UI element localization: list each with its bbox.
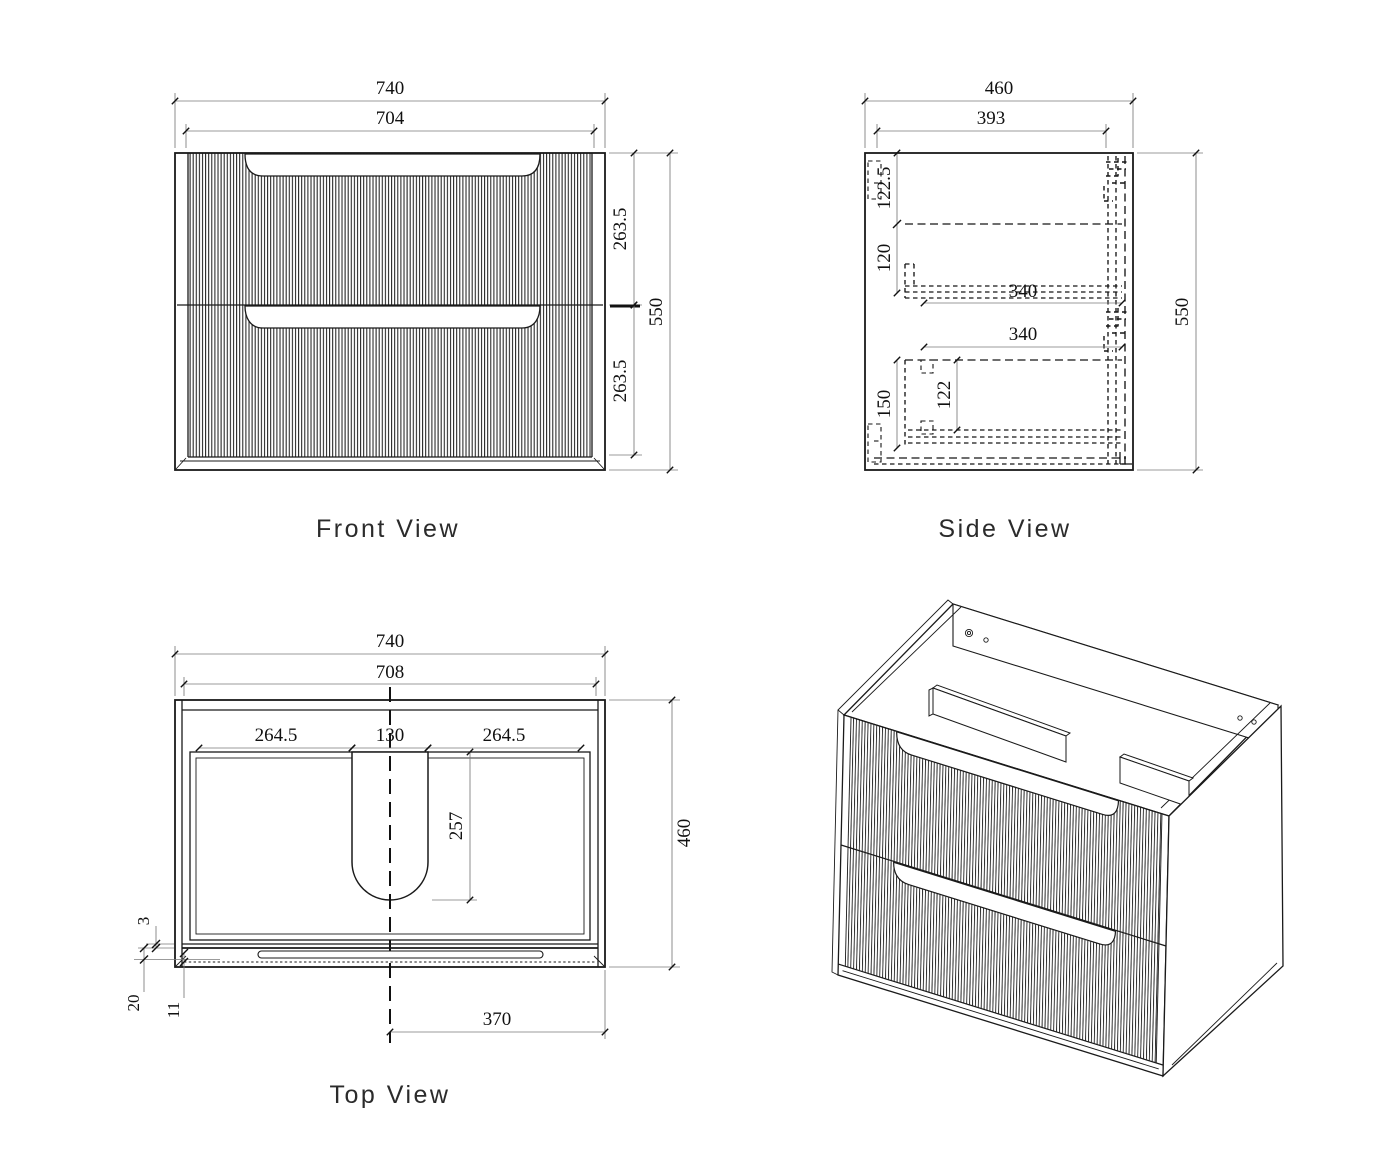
front-view: 740 704 263.5 263.5 550 Front View: [175, 78, 678, 543]
svg-text:120: 120: [874, 244, 895, 273]
top-dim-cutout-center: 370: [390, 970, 605, 1039]
svg-text:150: 150: [874, 390, 895, 419]
svg-text:550: 550: [1172, 298, 1193, 327]
svg-text:460: 460: [985, 78, 1014, 99]
side-view: 460 393 122.5 120 150 122 340 340 550 Si…: [865, 78, 1203, 543]
side-dim-overall-height: 550: [1137, 153, 1203, 470]
front-dim-drawer-width: 704: [186, 108, 594, 148]
top-dim-overall-depth: 460: [609, 700, 695, 967]
svg-text:263.5: 263.5: [610, 208, 631, 251]
front-view-label: Front View: [316, 515, 460, 543]
svg-text:704: 704: [376, 108, 405, 129]
svg-text:340: 340: [1009, 281, 1038, 302]
front-bottom-drawer-handle-recess: [245, 306, 540, 328]
top-handle-groove: [258, 951, 543, 958]
svg-text:122: 122: [934, 381, 955, 410]
isometric-view: [832, 600, 1283, 1076]
top-view-label: Top View: [330, 1081, 451, 1109]
front-top-drawer-handle-recess: [245, 154, 540, 176]
svg-text:3: 3: [134, 917, 153, 926]
svg-text:393: 393: [977, 108, 1006, 129]
technical-drawing-svg: 740 704 263.5 263.5 550 Front View: [0, 0, 1400, 1171]
svg-text:370: 370: [483, 1009, 512, 1030]
svg-text:708: 708: [376, 662, 405, 683]
front-dim-heights: 263.5 263.5 550: [609, 153, 678, 470]
svg-text:264.5: 264.5: [255, 725, 298, 746]
svg-text:11: 11: [164, 1002, 183, 1018]
svg-text:740: 740: [376, 631, 405, 652]
side-view-label: Side View: [938, 515, 1071, 543]
svg-text:550: 550: [646, 298, 667, 327]
svg-text:460: 460: [674, 819, 695, 848]
svg-text:122.5: 122.5: [874, 167, 895, 210]
svg-text:264.5: 264.5: [483, 725, 526, 746]
side-dim-internal-depth: 393: [877, 108, 1106, 148]
drawing-sheet: 740 704 263.5 263.5 550 Front View: [0, 0, 1400, 1171]
svg-text:257: 257: [446, 812, 467, 841]
top-view: 740 708 264.5 130 264.5 257 460 370: [124, 631, 695, 1109]
svg-text:20: 20: [124, 995, 143, 1012]
side-cabinet-outline: [865, 153, 1133, 470]
top-dim-cutout-position: 264.5 130 264.5: [199, 725, 581, 748]
svg-text:340: 340: [1009, 324, 1038, 345]
svg-text:130: 130: [376, 725, 405, 746]
svg-text:263.5: 263.5: [610, 360, 631, 403]
svg-text:740: 740: [376, 78, 405, 99]
